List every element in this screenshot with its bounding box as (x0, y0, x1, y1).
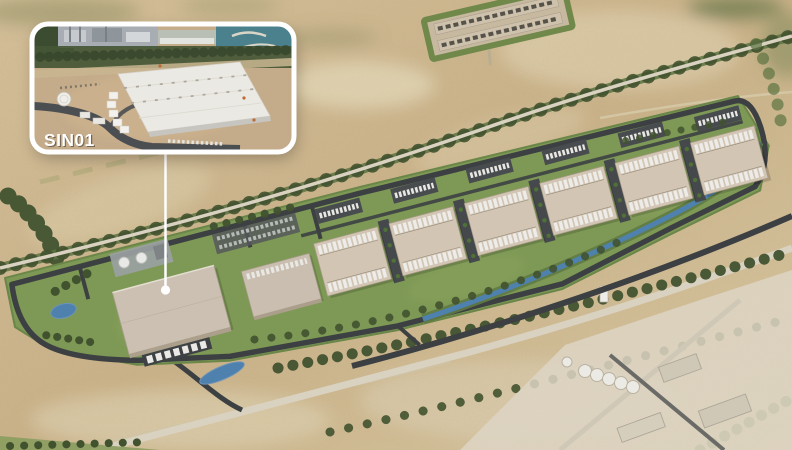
sin01-label: SIN01 (44, 130, 95, 150)
scene-svg: SIN01 SIN01 (0, 0, 792, 450)
inset-callout: SIN01 SIN01 (32, 24, 296, 158)
leader-dot (161, 285, 170, 294)
dome-tank (57, 92, 71, 106)
aerial-render: SIN01 SIN01 (0, 0, 792, 450)
